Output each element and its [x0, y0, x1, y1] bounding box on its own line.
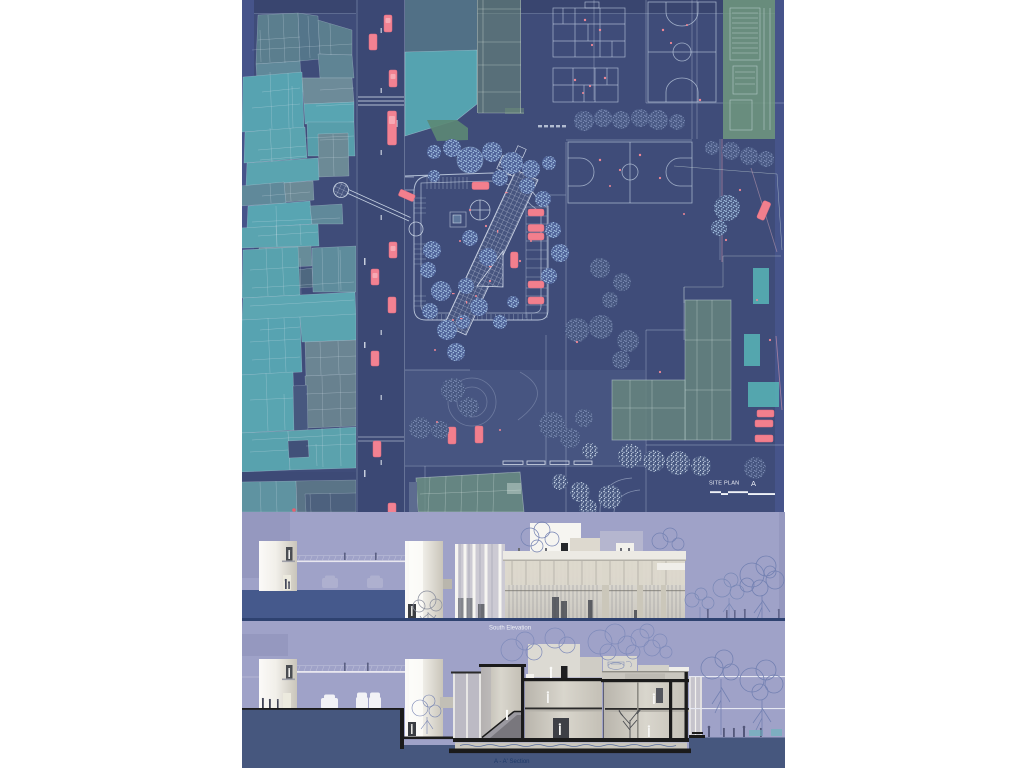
svg-text:South Elevation: South Elevation [489, 626, 531, 632]
svg-text:A: A [751, 479, 756, 488]
svg-text:SITE PLAN: SITE PLAN [709, 481, 739, 487]
svg-text:A - A' Section: A - A' Section [494, 759, 530, 765]
